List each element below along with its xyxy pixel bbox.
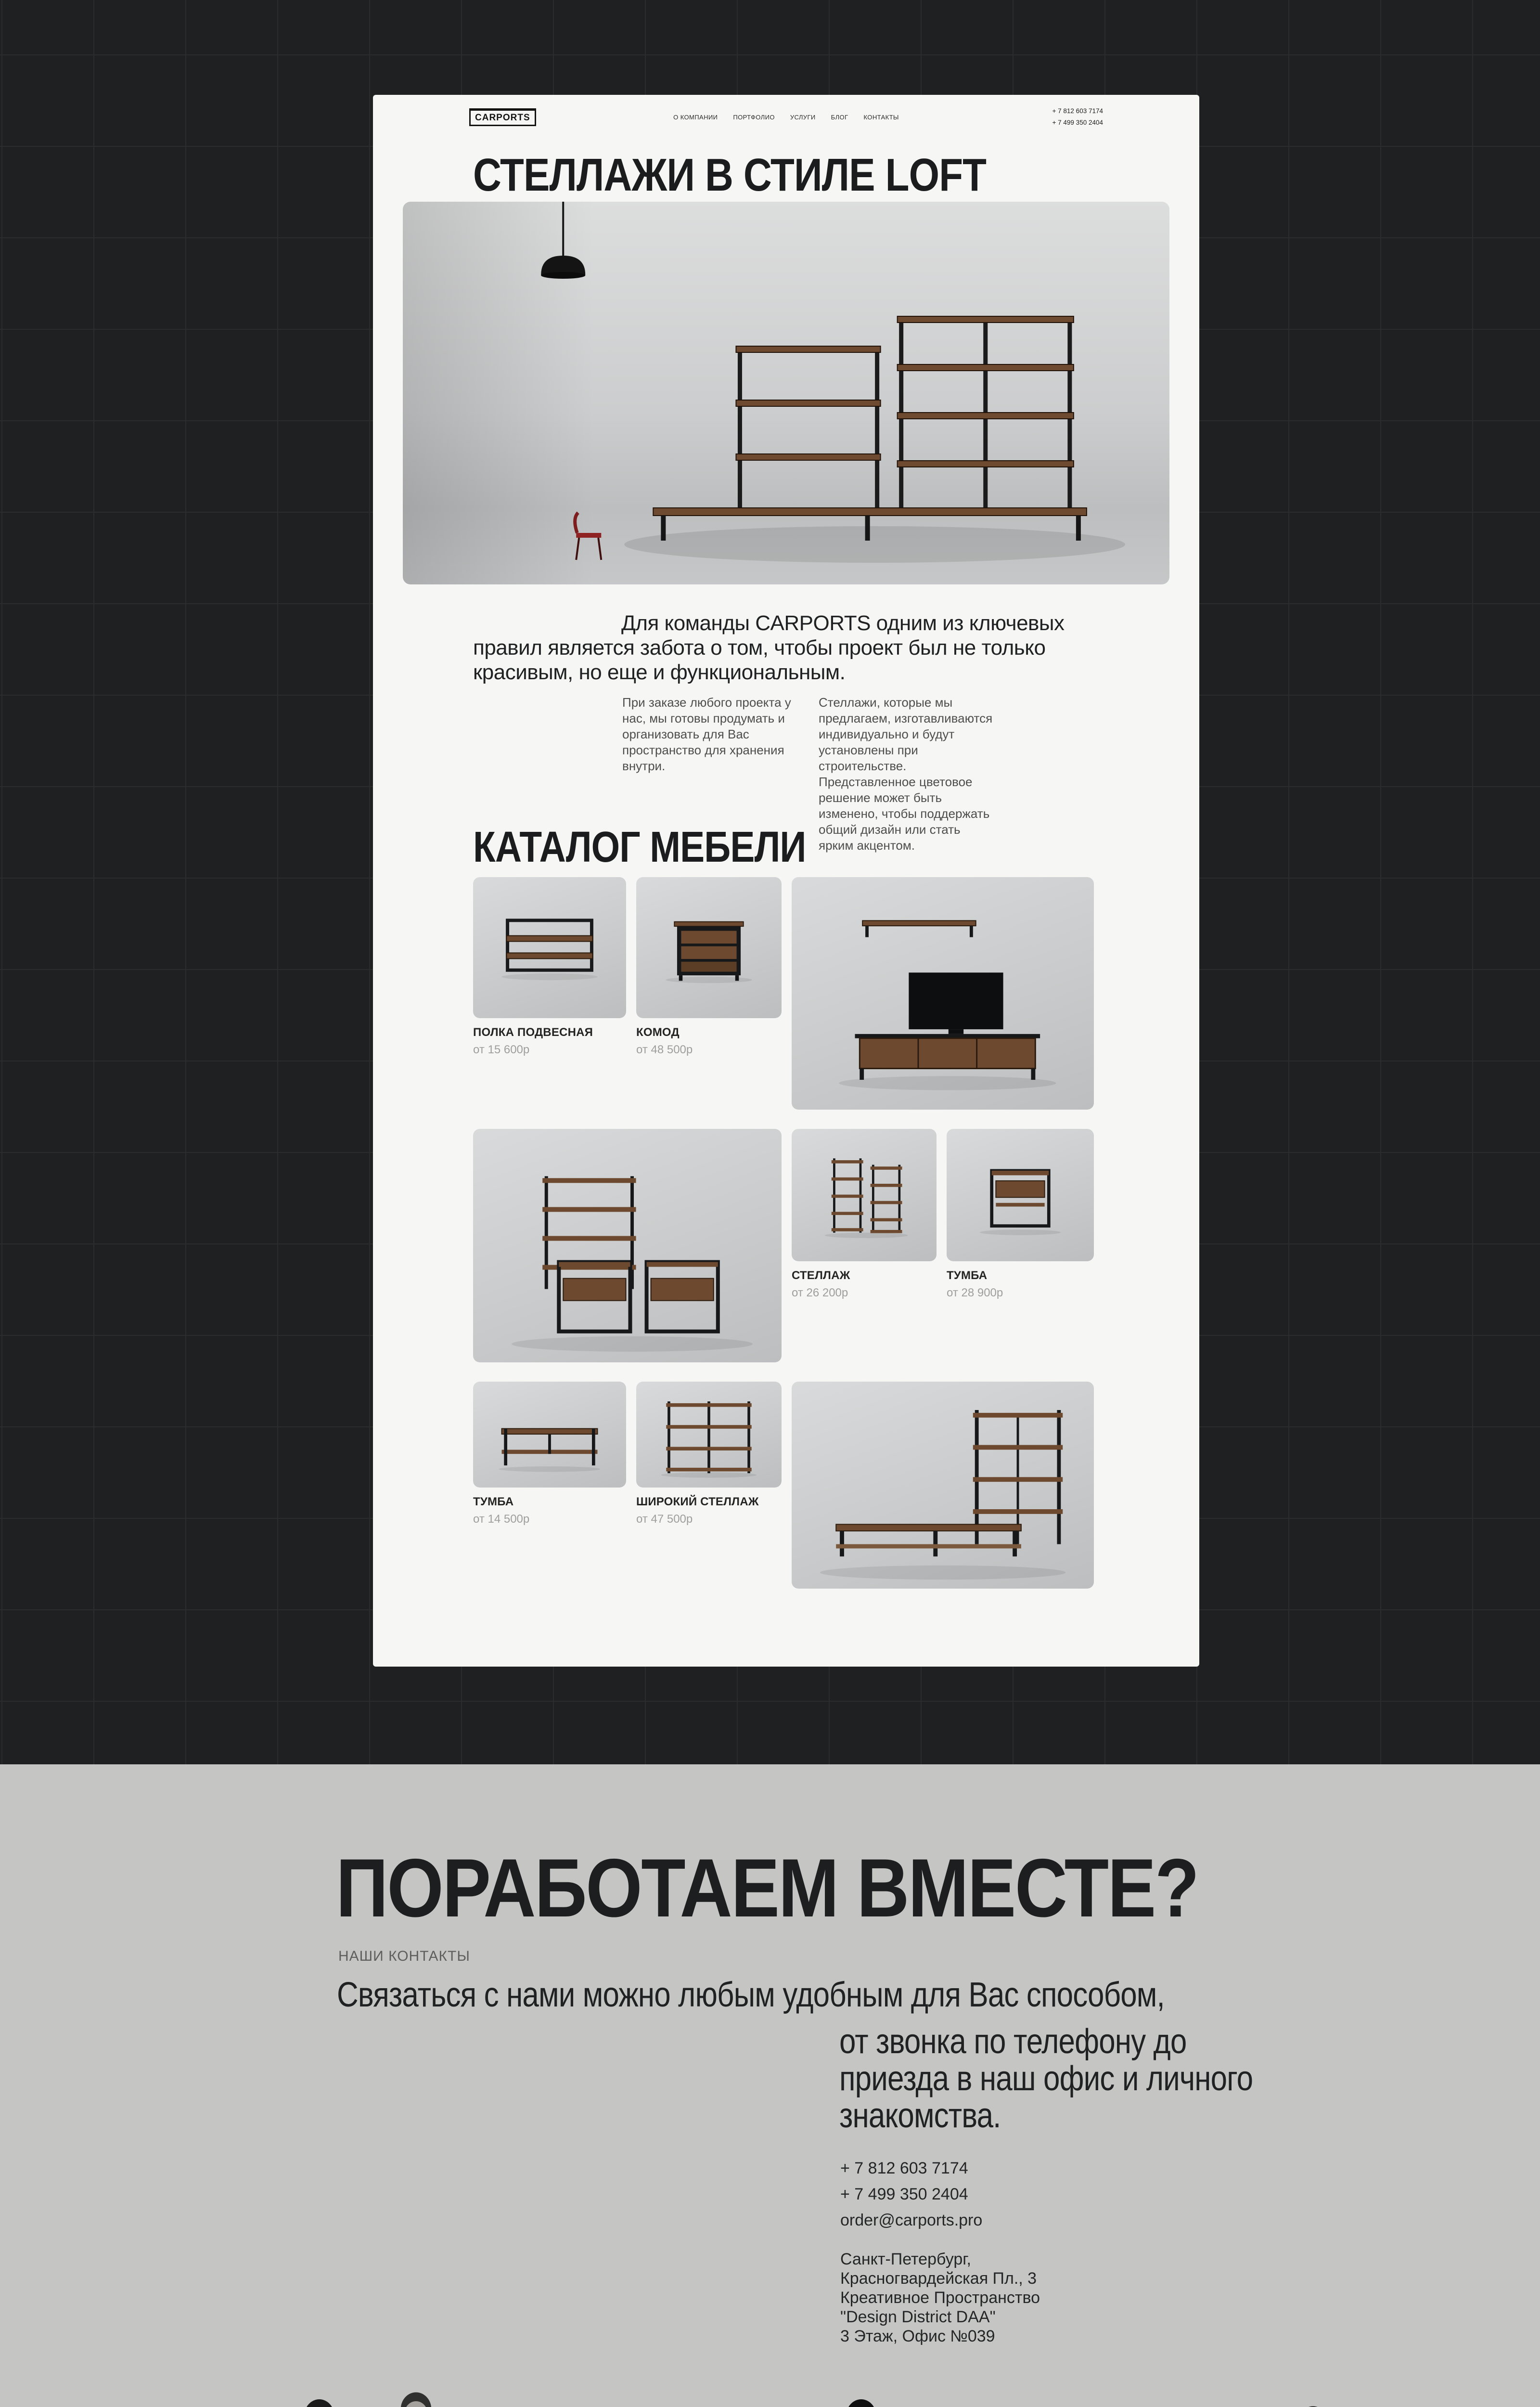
catalog-grid: ПОЛКА ПОДВЕСНАЯот 15 600рКОМОДот 48 500р… [373,95,1199,1667]
contact-phone[interactable]: + 7 812 603 7174 [840,2155,968,2181]
person-figure [5,2398,90,2407]
contact-label: НАШИ КОНТАКТЫ [338,1948,470,1965]
product-image [473,1382,626,1488]
website-mockup: CARPORTS О КОМПАНИИПОРТФОЛИОУСЛУГИБЛОГКО… [373,95,1199,1667]
person-figure [275,2389,363,2407]
address-line: Санкт-Петербург, [840,2250,1040,2269]
product-card[interactable]: КОМОДот 48 500р [636,877,782,1110]
contact-lead-line: приезда в наш офис и личного [839,2060,1253,2097]
product-name: ПОЛКА ПОДВЕСНАЯ [473,1026,626,1039]
product-price: от 48 500р [636,1043,782,1057]
contact-lead-line: от звонка по телефону до [839,2023,1253,2060]
person-figure [913,2398,999,2407]
contact-lead-rest: от звонка по телефону доприезда в наш оф… [839,2023,1253,2135]
contact-address: Санкт-Петербург,Красногвардейская Пл., 3… [840,2250,1040,2346]
product-card[interactable] [473,1129,782,1362]
address-line: Креативное Пространство [840,2288,1040,2307]
product-card[interactable]: ТУМБАот 14 500р [473,1382,626,1589]
contact-section: ПОРАБОТАЕМ ВМЕСТЕ? НАШИ КОНТАКТЫ Связать… [0,1764,1540,2407]
product-card[interactable]: СТЕЛЛАЖот 26 200р [792,1129,937,1362]
product-card[interactable] [792,1382,1094,1589]
product-image [636,877,782,1018]
product-price: от 47 500р [636,1513,782,1526]
product-image [473,877,626,1018]
product-image [473,1129,782,1362]
product-card[interactable]: ТУМБАот 28 900р [947,1129,1094,1362]
person-figure [817,2389,905,2407]
product-name: СТЕЛЛАЖ [792,1269,937,1282]
team-photo [0,2381,1540,2407]
product-image [792,877,1094,1110]
product-image [947,1129,1094,1261]
product-card[interactable] [792,877,1094,1110]
presentation-canvas: CARPORTS О КОМПАНИИПОРТФОЛИОУСЛУГИБЛОГКО… [0,0,1540,1764]
contact-phones: + 7 812 603 7174+ 7 499 350 2404 [840,2155,968,2207]
contact-lead: Связаться с нами можно любым удобным для… [337,1975,1165,2015]
contact-lead-line: знакомства. [839,2097,1253,2135]
product-price: от 26 200р [792,1286,937,1300]
address-line: Красногвардейская Пл., 3 [840,2269,1040,2288]
product-image [792,1129,937,1261]
product-name: ТУМБА [473,1495,626,1509]
product-card[interactable]: ШИРОКИЙ СТЕЛЛАЖот 47 500р [636,1382,782,1589]
person-figure [371,2381,461,2407]
address-line: "Design District DAA" [840,2307,1040,2327]
product-name: ТУМБА [947,1269,1094,1282]
contact-title: ПОРАБОТАЕМ ВМЕСТЕ? [336,1840,1198,1936]
contact-phone[interactable]: + 7 499 350 2404 [840,2181,968,2207]
product-name: КОМОД [636,1026,782,1039]
product-price: от 15 600р [473,1043,626,1057]
person-figure [1450,2401,1535,2407]
product-image [636,1382,782,1488]
product-price: от 14 500р [473,1513,626,1526]
product-price: от 28 900р [947,1286,1094,1300]
product-image [792,1382,1094,1589]
product-name: ШИРОКИЙ СТЕЛЛАЖ [636,1495,782,1509]
contact-email[interactable]: order@carports.pro [840,2211,982,2230]
address-line: 3 Этаж, Офис №039 [840,2327,1040,2346]
person-figure [1270,2396,1356,2407]
product-card[interactable]: ПОЛКА ПОДВЕСНАЯот 15 600р [473,877,626,1110]
